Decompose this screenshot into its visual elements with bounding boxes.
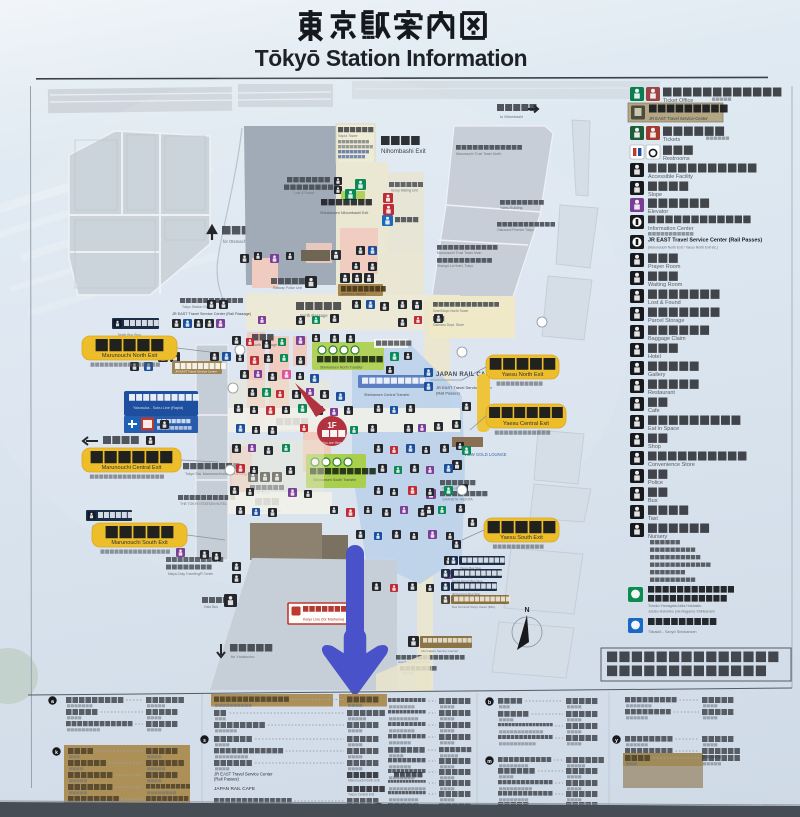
svg-text:Shop: Shop xyxy=(648,444,661,450)
svg-text:GRANSTA YAEKITA: GRANSTA YAEKITA xyxy=(442,498,473,502)
svg-text:Keiyo Line (for Maihama): Keiyo Line (for Maihama) xyxy=(303,618,344,622)
svg-text:Nursery: Nursery xyxy=(648,534,668,540)
svg-text:Accessible Facility: Accessible Facility xyxy=(648,174,693,180)
svg-text:Baggage Claim: Baggage Claim xyxy=(648,336,686,342)
svg-text:Tickets: Tickets xyxy=(663,137,680,143)
svg-text:1F: 1F xyxy=(327,421,336,430)
svg-text:Marunouchi North Exit: Marunouchi North Exit xyxy=(102,353,158,359)
svg-text:Hato Bus: Hato Bus xyxy=(204,605,218,609)
svg-text:(Rail Passes): (Rail Passes) xyxy=(436,391,460,396)
svg-text:Bus Terminal Tokyo Yaesu (B1F): Bus Terminal Tokyo Yaesu (B1F) xyxy=(452,605,495,609)
svg-text:Tohoku Yamagata Akita Hokka: Tohoku Yamagata Akita Hokkaido xyxy=(648,604,701,608)
svg-text:JR EAST Travel Service-Center: JR EAST Travel Service-Center xyxy=(649,116,708,121)
svg-text:Police: Police xyxy=(648,480,663,486)
svg-text:Hotel: Hotel xyxy=(648,354,661,360)
svg-text:Yaesu Central Exit: Yaesu Central Exit xyxy=(503,421,549,427)
svg-text:Bus: Bus xyxy=(648,498,658,504)
svg-text:JR EAST Travel Service Center: JR EAST Travel Service Center (Rail Pass… xyxy=(172,312,252,316)
svg-text:Yaesu North Exit: Yaesu North Exit xyxy=(502,372,544,378)
svg-text:Marunouchi Trust Tower North: Marunouchi Trust Tower North xyxy=(456,152,501,156)
svg-text:(Rail Passes): (Rail Passes) xyxy=(214,777,240,782)
svg-text:Oakwood Premier Tokyo: Oakwood Premier Tokyo xyxy=(497,228,534,232)
svg-text:You are Here: You are Here xyxy=(322,441,342,445)
svg-text:Convenience Store: Convenience Store xyxy=(648,462,695,468)
svg-text:Daimaru Dept. Store: Daimaru Dept. Store xyxy=(433,323,464,327)
svg-text:Shinkansen Central Transfer: Shinkansen Central Transfer xyxy=(364,393,410,397)
svg-text:Yaesu Central Exit: Yaesu Central Exit xyxy=(348,793,374,797)
svg-text:y: y xyxy=(615,738,618,744)
svg-text:Railway Police Unit: Railway Police Unit xyxy=(273,286,302,290)
svg-text:Shinkansen Nihombashi Exit: Shinkansen Nihombashi Exit xyxy=(320,211,369,215)
svg-text:Marunouchi North Exit: Marunouchi North Exit xyxy=(348,779,380,783)
svg-text:JR EAST Travel Service Center: JR EAST Travel Service Center xyxy=(175,370,217,374)
svg-text:Gallery: Gallery xyxy=(648,372,666,378)
svg-text:b: b xyxy=(488,700,491,706)
svg-text:GRANSTA YAEKITA: GRANSTA YAEKITA xyxy=(341,292,366,296)
svg-text:Maiya-Chay Travelling/R Center: Maiya-Chay Travelling/R Center xyxy=(168,572,214,576)
svg-text:Shinkansen North Transfer: Shinkansen North Transfer xyxy=(320,366,364,370)
svg-text:Prayer Room: Prayer Room xyxy=(648,264,681,270)
svg-text:Marunouchi Central Exit: Marunouchi Central Exit xyxy=(102,465,162,471)
svg-text:Lost & Found: Lost & Found xyxy=(648,300,681,306)
svg-text:THE TOKYO STATION HOTEL: THE TOKYO STATION HOTEL xyxy=(180,502,227,506)
svg-text:Shangri-La Hotel, Tokyo: Shangri-La Hotel, Tokyo xyxy=(437,264,473,268)
svg-text:GranTokyo North Tower: GranTokyo North Tower xyxy=(433,309,469,313)
svg-text:a: a xyxy=(51,699,54,705)
svg-text:Restaurant: Restaurant xyxy=(648,390,675,396)
svg-text:N: N xyxy=(524,607,529,614)
svg-text:Eat in Space: Eat in Space xyxy=(648,426,679,432)
svg-text:Taxi: Taxi xyxy=(648,516,658,522)
svg-text:for Otemachi: for Otemachi xyxy=(223,239,247,244)
svg-text:Tōkyō Station Information: Tōkyō Station Information xyxy=(255,45,527,71)
svg-text:JR EAST Travel Service Center: JR EAST Travel Service Center (Rail Pass… xyxy=(648,238,762,244)
svg-text:Marunouchi Trust Tower Main: Marunouchi Trust Tower Main xyxy=(437,251,482,255)
svg-text:Sapia Tower: Sapia Tower xyxy=(338,134,359,138)
svg-text:m: m xyxy=(487,759,492,765)
svg-text:Yokosuka - Sobu Line (Rapid): Yokosuka - Sobu Line (Rapid) xyxy=(133,406,184,410)
svg-text:JAPAN RAIL CAFE: JAPAN RAIL CAFE xyxy=(214,786,255,792)
svg-text:Information Center: Information Center xyxy=(648,226,694,232)
svg-text:Cafe: Cafe xyxy=(648,408,660,414)
svg-text:Yaesu Building: Yaesu Building xyxy=(500,206,522,210)
svg-text:to Nihonbashi: to Nihonbashi xyxy=(500,115,523,119)
svg-text:s: s xyxy=(203,738,206,744)
svg-text:(Marunouchi North Exit / Yaesu: (Marunouchi North Exit / Yaesu North Exi… xyxy=(648,246,718,250)
svg-text:Information Service Counter: Information Service Counter xyxy=(421,649,458,653)
svg-text:Restrooms: Restrooms xyxy=(663,156,690,162)
svg-text:Parcel Storage: Parcel Storage xyxy=(648,318,684,324)
svg-text:Tōkaidō - Sanyō Shinkansen: Tōkaidō - Sanyō Shinkansen xyxy=(648,630,697,634)
svg-text:Joetsu Hokuriku (via Nagano): Joetsu Hokuriku (via Nagano) Shinkansen xyxy=(648,610,715,614)
svg-text:Group Waiting Unit: Group Waiting Unit xyxy=(391,189,418,193)
svg-text:for Yurakucho: for Yurakucho xyxy=(231,655,254,659)
svg-text:Elevator: Elevator xyxy=(648,209,668,215)
svg-text:Lost & Found: Lost & Found xyxy=(294,191,314,195)
svg-text:Slope: Slope xyxy=(648,192,662,198)
svg-text:Yaesu South Exit: Yaesu South Exit xyxy=(500,535,543,541)
svg-text:Nihombashi Exit: Nihombashi Exit xyxy=(381,148,426,155)
svg-text:k: k xyxy=(55,750,58,756)
svg-text:Waiting Room: Waiting Room xyxy=(648,282,683,288)
svg-text:Marunouchi South Exit: Marunouchi South Exit xyxy=(111,540,168,546)
